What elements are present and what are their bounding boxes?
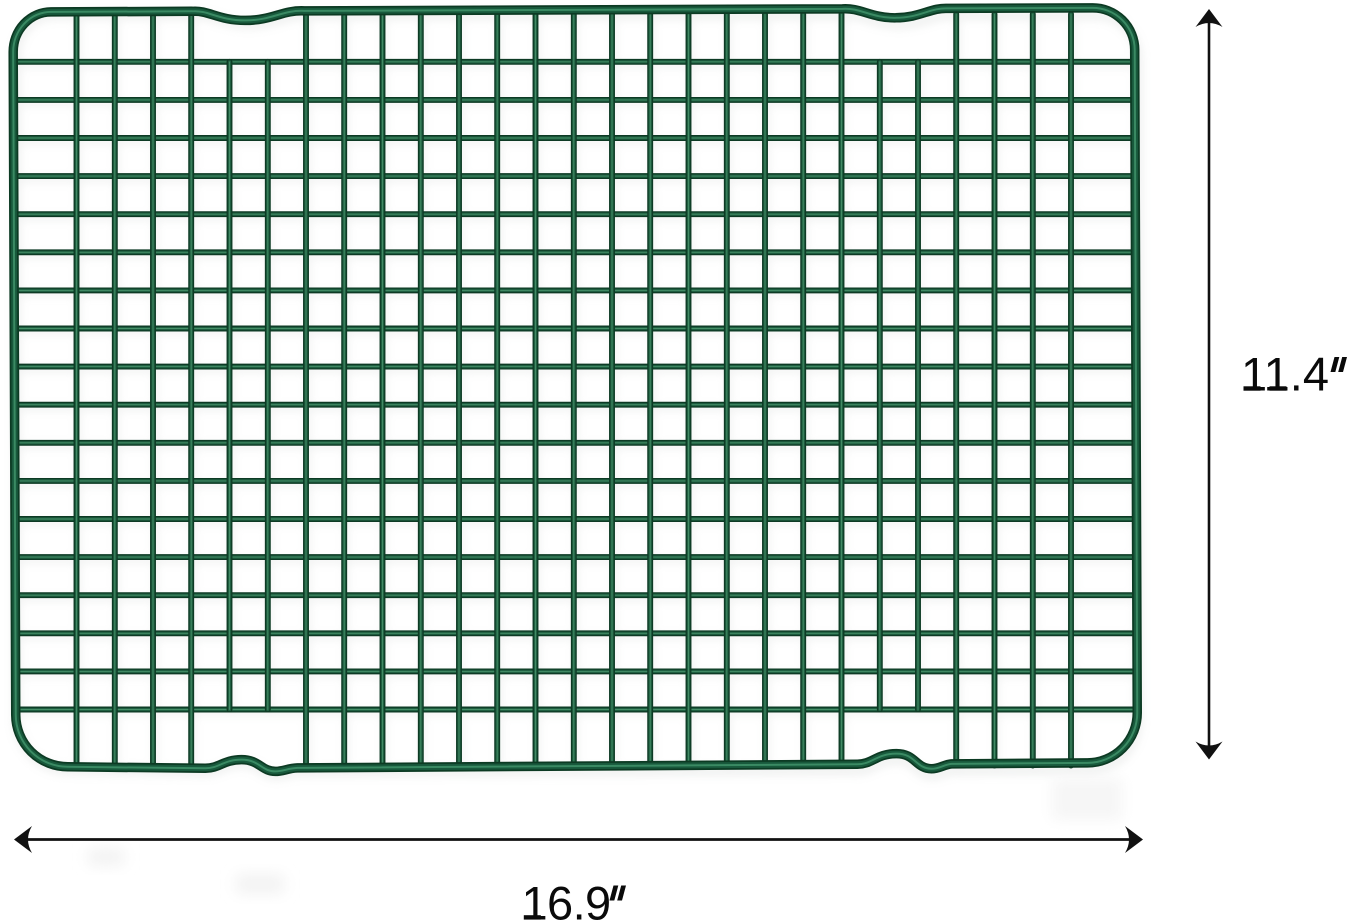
svg-text:16.9: 16.9 — [522, 877, 611, 922]
svg-text:11.4: 11.4 — [1241, 348, 1329, 401]
